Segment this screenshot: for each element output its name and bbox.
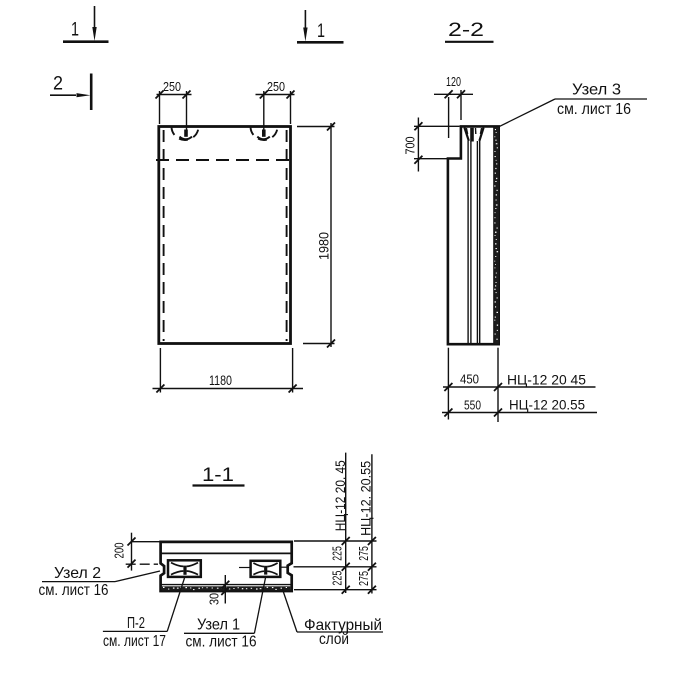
svg-text:НЦ-12 20.55: НЦ-12 20.55: [509, 397, 585, 413]
svg-text:225: 225: [331, 571, 345, 586]
svg-text:Узел 1: Узел 1: [197, 617, 240, 634]
svg-text:450: 450: [460, 372, 479, 387]
svg-text:НЦ-12 20. 45: НЦ-12 20. 45: [332, 460, 348, 531]
svg-text:НЦ-12. 20.55: НЦ-12. 20.55: [358, 461, 374, 536]
svg-text:см. лист 16: см. лист 16: [557, 101, 631, 118]
svg-text:275: 275: [357, 571, 371, 586]
svg-text:П-2: П-2: [127, 615, 145, 632]
svg-text:1: 1: [317, 21, 325, 42]
svg-text:см. лист 16: см. лист 16: [39, 582, 109, 599]
svg-text:2-2: 2-2: [448, 20, 484, 41]
svg-text:120: 120: [446, 74, 461, 89]
svg-text:1980: 1980: [317, 232, 332, 260]
svg-text:275: 275: [357, 546, 371, 561]
svg-text:Узел 3: Узел 3: [572, 82, 621, 99]
svg-text:1: 1: [71, 20, 79, 41]
svg-text:700: 700: [403, 137, 418, 155]
svg-text:250: 250: [267, 79, 285, 94]
svg-text:см. лист 17: см. лист 17: [103, 633, 166, 650]
svg-text:200: 200: [112, 543, 127, 559]
svg-text:1-1: 1-1: [202, 465, 234, 486]
svg-text:НЦ-12 20 45: НЦ-12 20 45: [507, 372, 586, 388]
svg-text:2: 2: [53, 74, 63, 95]
svg-text:Узел 2: Узел 2: [54, 565, 101, 582]
svg-text:30: 30: [207, 593, 222, 605]
svg-text:см. лист 16: см. лист 16: [186, 634, 257, 651]
svg-text:225: 225: [331, 546, 345, 561]
svg-text:550: 550: [464, 398, 481, 413]
svg-text:1180: 1180: [209, 373, 232, 388]
svg-text:250: 250: [163, 79, 181, 94]
svg-text:слой: слой: [319, 631, 349, 648]
